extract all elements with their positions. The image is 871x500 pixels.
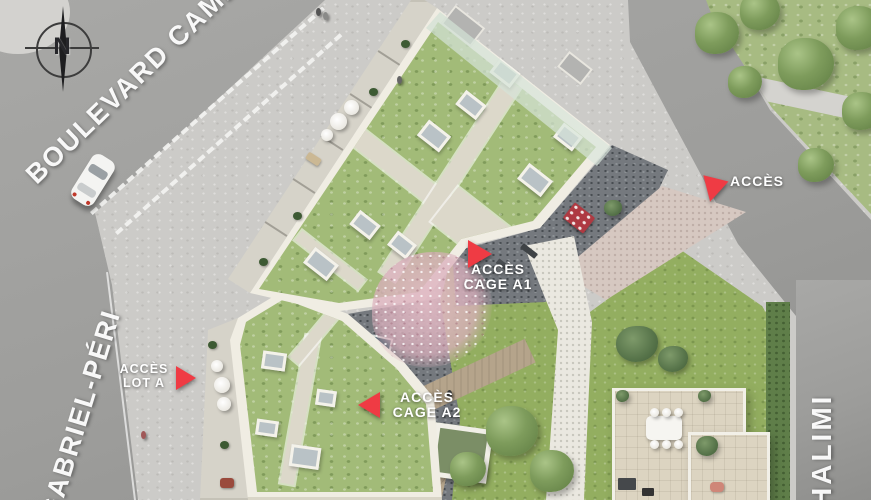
pedestrian: [397, 76, 402, 84]
planter: [208, 341, 217, 349]
access-label-cage-a2: ACCÈS CAGE A2: [384, 390, 470, 420]
dining-table: [646, 416, 682, 440]
access-label-line: ACCÈS: [450, 262, 546, 277]
pedestrian: [141, 431, 146, 439]
chair: [650, 440, 659, 449]
north-compass: N: [30, 16, 94, 80]
access-label-lot-a: ACCÈS LOT A: [112, 362, 176, 390]
access-label-line: ACCÈS: [730, 173, 784, 189]
chair: [674, 408, 683, 417]
access-arrow-icon-left: [358, 392, 380, 418]
planter: [220, 441, 229, 449]
street-label-halimi: HALIMI: [806, 394, 838, 500]
umbrella: [344, 100, 359, 115]
site-plan: N BOULEVARD CAMÉL GABRIEL-PÉRI HALIMI AC…: [0, 0, 871, 500]
skylight: [315, 389, 337, 408]
umbrella: [330, 113, 347, 130]
skylight: [255, 419, 279, 438]
planter: [401, 40, 410, 48]
skylight: [289, 444, 322, 470]
tree: [842, 92, 871, 130]
skylight: [261, 350, 287, 371]
pedestrian: [323, 12, 328, 20]
lounge-chair: [710, 482, 724, 492]
access-label-line: CAGE A2: [384, 405, 470, 420]
umbrella: [217, 397, 231, 411]
access-label-cage-a1: ACCÈS CAGE A1: [450, 262, 546, 292]
planter: [369, 88, 378, 96]
access-label-line: ACCÈS: [112, 362, 176, 376]
chair: [674, 440, 683, 449]
umbrella: [211, 360, 223, 372]
storage-unit: [618, 478, 636, 490]
tree: [836, 6, 871, 50]
access-label-line: CAGE A1: [450, 277, 546, 292]
compass-n-letter: N: [30, 33, 94, 61]
umbrella: [214, 377, 230, 393]
access-label-line: LOT A: [112, 376, 176, 390]
chair: [650, 408, 659, 417]
flower-planter: [220, 478, 234, 488]
planter: [259, 258, 268, 266]
storage-unit: [642, 488, 654, 496]
chair: [662, 440, 671, 449]
pedestrian: [316, 8, 321, 16]
access-label-top: ACCÈS: [730, 174, 800, 189]
access-label-line: ACCÈS: [384, 390, 470, 405]
access-arrow-icon-right: [176, 366, 196, 390]
planter: [293, 212, 302, 220]
chair: [662, 408, 671, 417]
umbrella: [321, 129, 333, 141]
